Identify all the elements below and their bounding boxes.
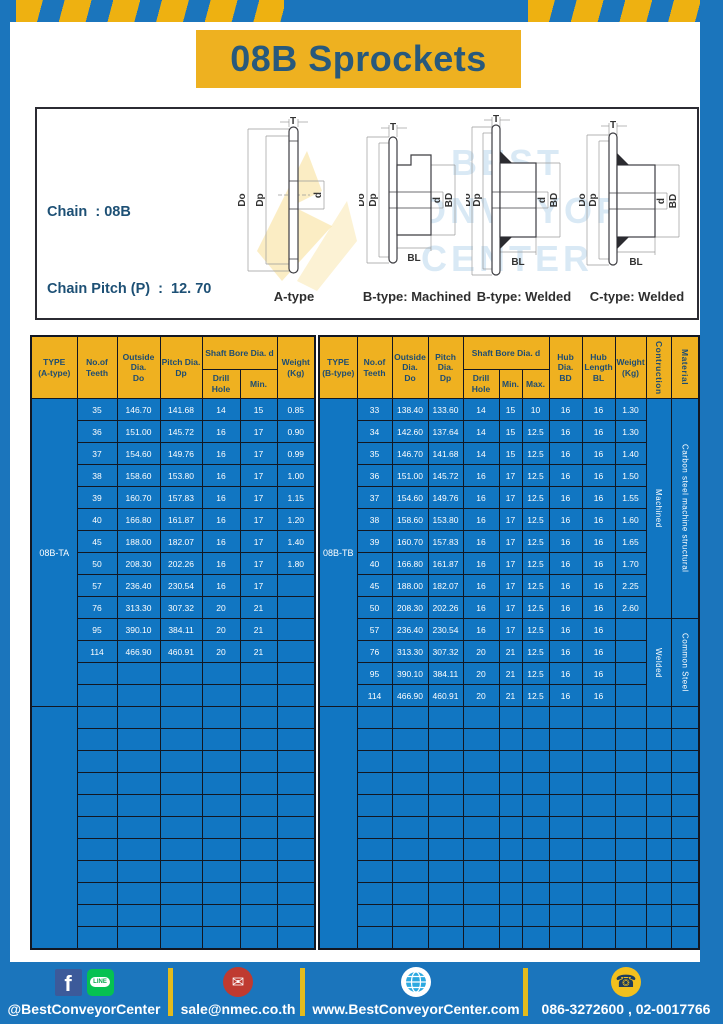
table-row (319, 927, 699, 950)
data-cell (77, 685, 117, 707)
data-cell (499, 861, 522, 883)
data-cell (357, 839, 392, 861)
table-a-type: TYPE (A-type) No.of Teeth Outside Dia. D… (30, 335, 316, 950)
data-cell (615, 905, 646, 927)
data-cell (77, 861, 117, 883)
sprocket-drawing-c-welded: T Do Dp d BD BL (579, 115, 695, 287)
data-cell: 16 (582, 663, 615, 685)
mail-icon[interactable]: ✉ (223, 967, 253, 997)
data-cell (582, 773, 615, 795)
data-cell (160, 927, 202, 950)
data-cell: 16 (549, 641, 582, 663)
data-cell: 151.00 (117, 421, 160, 443)
data-cell (522, 883, 549, 905)
table-row: 38158.60153.80161712.516161.60 (319, 509, 699, 531)
data-cell (615, 729, 646, 751)
data-cell (202, 773, 240, 795)
table-row (319, 861, 699, 883)
data-cell (392, 773, 428, 795)
data-cell (671, 839, 699, 861)
data-cell: 166.80 (117, 509, 160, 531)
data-cell (277, 575, 315, 597)
data-cell: 36 (77, 421, 117, 443)
data-cell (160, 773, 202, 795)
data-cell (499, 839, 522, 861)
header-teeth: No.of Teeth (77, 336, 117, 399)
data-cell (160, 861, 202, 883)
table-row: 08B-TB33138.40133.6014151016161.30Machin… (319, 399, 699, 421)
diagram-b-type-welded: T Do Dp d BD BL B-type: Welded (466, 115, 582, 304)
data-cell (277, 685, 315, 707)
dim-t-label: T (493, 115, 499, 125)
data-cell (357, 883, 392, 905)
data-cell (117, 883, 160, 905)
diagram-caption: C-type: Welded (579, 289, 695, 304)
table-row (319, 839, 699, 861)
data-cell (549, 839, 582, 861)
data-cell (357, 795, 392, 817)
data-cell (277, 619, 315, 641)
line-icon[interactable]: LINE (87, 969, 114, 996)
data-cell (646, 773, 671, 795)
footer-email-section[interactable]: ✉ sale@nmec.co.th (178, 965, 298, 1017)
footer-divider (168, 968, 173, 1016)
globe-glyph (404, 970, 428, 994)
data-cell (671, 883, 699, 905)
data-cell: 1.20 (277, 509, 315, 531)
data-cell (117, 861, 160, 883)
data-cell (582, 905, 615, 927)
data-cell: 1.00 (277, 465, 315, 487)
data-cell: 14 (463, 421, 499, 443)
data-cell (522, 707, 549, 729)
data-cell (615, 927, 646, 950)
data-cell (277, 817, 315, 839)
data-cell (671, 905, 699, 927)
data-cell (646, 795, 671, 817)
data-cell: 16 (582, 487, 615, 509)
data-cell (499, 905, 522, 927)
data-cell (463, 729, 499, 751)
data-cell (499, 773, 522, 795)
data-cell: 146.70 (392, 443, 428, 465)
sprocket-drawing-a: T Do Dp d (236, 115, 352, 287)
data-cell: 182.07 (160, 531, 202, 553)
table-row: 40166.80161.87161712.516161.70 (319, 553, 699, 575)
data-cell: 141.68 (160, 399, 202, 421)
data-cell: 0.85 (277, 399, 315, 421)
data-cell (77, 839, 117, 861)
data-cell: 384.11 (428, 663, 463, 685)
data-cell: 15 (499, 421, 522, 443)
data-cell (277, 773, 315, 795)
data-cell: 38 (357, 509, 392, 531)
table-row: 76313.30307.32202112.51616 (319, 641, 699, 663)
data-cell: 1.65 (615, 531, 646, 553)
diagram-panel: BEST CONVEYOR CENTER Chain : 08B Chain P… (35, 107, 699, 320)
data-cell: 14 (202, 399, 240, 421)
data-cell (202, 685, 240, 707)
table-row: 35146.70141.68141512.516161.40 (319, 443, 699, 465)
data-cell: 20 (463, 663, 499, 685)
data-cell (77, 663, 117, 685)
hazard-stripes-left (16, 0, 284, 22)
data-cell (428, 751, 463, 773)
data-cell: 20 (463, 641, 499, 663)
data-cell (428, 905, 463, 927)
footer-divider (523, 968, 528, 1016)
globe-icon[interactable] (401, 967, 431, 997)
data-cell: 230.54 (160, 575, 202, 597)
data-cell (240, 861, 277, 883)
data-cell: 12.5 (522, 619, 549, 641)
data-cell: 114 (77, 641, 117, 663)
data-cell: 1.80 (277, 553, 315, 575)
data-cell (240, 663, 277, 685)
header-shaft-bore: Shaft Bore Dia. d (202, 336, 277, 370)
data-cell: 230.54 (428, 619, 463, 641)
data-cell: 16 (463, 487, 499, 509)
data-cell (428, 839, 463, 861)
data-cell (357, 927, 392, 950)
data-cell: 17 (499, 575, 522, 597)
data-cell (582, 817, 615, 839)
table-row (319, 729, 699, 751)
data-cell (615, 883, 646, 905)
data-cell: 133.60 (428, 399, 463, 421)
data-cell (277, 663, 315, 685)
footer-phone-section[interactable]: ☎ 086-3272600 , 02-0017766 (533, 965, 719, 1017)
data-cell (202, 729, 240, 751)
data-cell: 16 (582, 685, 615, 707)
data-cell (671, 817, 699, 839)
data-cell: 188.00 (392, 575, 428, 597)
data-cell: 0.90 (277, 421, 315, 443)
data-cell: 16 (549, 575, 582, 597)
data-cell (582, 839, 615, 861)
data-cell (117, 795, 160, 817)
diagram-c-type-welded: T Do Dp d BD BL C-type: Welded (579, 115, 695, 304)
data-cell (240, 707, 277, 729)
data-cell: 16 (582, 399, 615, 421)
data-cell: 21 (499, 663, 522, 685)
table-a-body: 08B-TA35146.70141.6814150.8536151.00145.… (31, 399, 315, 950)
data-cell: 20 (202, 619, 240, 641)
data-cell: 15 (499, 399, 522, 421)
data-cell (392, 927, 428, 950)
data-cell: 149.76 (428, 487, 463, 509)
data-cell (671, 707, 699, 729)
data-cell (549, 751, 582, 773)
dim-bd-label: BD (549, 193, 560, 207)
data-cell (522, 773, 549, 795)
data-cell (240, 905, 277, 927)
header-type: TYPE (B-type) (319, 336, 357, 399)
data-cell (277, 597, 315, 619)
data-cell (240, 729, 277, 751)
data-cell: 153.80 (160, 465, 202, 487)
footer-social-section[interactable]: f LINE @BestConveyorCenter (4, 965, 164, 1017)
table-row: 45188.00182.07161712.516162.25 (319, 575, 699, 597)
data-cell: 14 (463, 443, 499, 465)
data-cell (77, 707, 117, 729)
data-cell (615, 839, 646, 861)
data-cell: 40 (77, 509, 117, 531)
data-cell: 17 (499, 597, 522, 619)
data-cell (117, 927, 160, 950)
data-cell (392, 883, 428, 905)
data-cell (202, 663, 240, 685)
data-cell (615, 817, 646, 839)
data-cell (117, 707, 160, 729)
data-cell (463, 905, 499, 927)
dim-d-label: d (313, 192, 324, 198)
data-cell: 50 (357, 597, 392, 619)
line-icon-label: LINE (90, 977, 110, 987)
data-cell (160, 685, 202, 707)
data-cell: 16 (582, 421, 615, 443)
dim-bd-label: BD (444, 193, 455, 207)
data-cell (522, 927, 549, 950)
data-cell (522, 817, 549, 839)
table-row (319, 707, 699, 729)
data-cell: 16 (582, 553, 615, 575)
data-cell (522, 861, 549, 883)
data-cell (549, 795, 582, 817)
phone-numbers-text[interactable]: 086-3272600 , 02-0017766 (533, 1001, 719, 1017)
data-cell: 21 (240, 619, 277, 641)
data-cell: 16 (549, 553, 582, 575)
data-cell (277, 751, 315, 773)
data-cell: 16 (463, 619, 499, 641)
data-cell (646, 729, 671, 751)
data-cell (463, 817, 499, 839)
data-cell: 20 (202, 641, 240, 663)
data-cell (357, 707, 392, 729)
website-text[interactable]: www.BestConveyorCenter.com (312, 1001, 520, 1017)
data-cell (428, 795, 463, 817)
facebook-icon[interactable]: f (55, 969, 82, 996)
footer-divider (300, 968, 305, 1016)
hazard-stripes-right (528, 0, 723, 22)
data-cell (202, 817, 240, 839)
data-cell: 146.70 (117, 399, 160, 421)
data-cell (463, 707, 499, 729)
right-border (700, 0, 723, 1024)
data-cell: 188.00 (117, 531, 160, 553)
data-cell (392, 795, 428, 817)
dim-t-label: T (290, 116, 296, 127)
social-handle-text[interactable]: @BestConveyorCenter (4, 1001, 164, 1017)
data-cell: 17 (499, 553, 522, 575)
type-cell: 08B-TB (319, 399, 357, 707)
data-cell (428, 861, 463, 883)
table-row: 08B-TA35146.70141.6814150.85 (31, 399, 315, 421)
data-cell (549, 905, 582, 927)
data-cell (277, 641, 315, 663)
data-cell (202, 751, 240, 773)
dim-bd-label: BD (668, 194, 679, 208)
data-cell: 33 (357, 399, 392, 421)
data-cell: 34 (357, 421, 392, 443)
data-cell (463, 861, 499, 883)
table-row (319, 905, 699, 927)
data-cell: 35 (357, 443, 392, 465)
data-cell: 208.30 (117, 553, 160, 575)
data-cell: 17 (240, 509, 277, 531)
data-cell (428, 773, 463, 795)
data-cell: 17 (499, 487, 522, 509)
data-cell: 16 (549, 421, 582, 443)
dim-d-label: d (537, 197, 548, 203)
data-cell: 12.5 (522, 663, 549, 685)
email-text[interactable]: sale@nmec.co.th (178, 1001, 298, 1017)
data-cell (240, 839, 277, 861)
data-cell (671, 751, 699, 773)
data-cell (392, 729, 428, 751)
data-cell: 35 (77, 399, 117, 421)
data-cell: 12.5 (522, 597, 549, 619)
data-cell (646, 751, 671, 773)
data-cell (117, 817, 160, 839)
data-cell: 166.80 (392, 553, 428, 575)
data-cell: 12.5 (522, 641, 549, 663)
table-row (319, 751, 699, 773)
header-drill-hole: Drill Hole (463, 370, 499, 399)
data-cell (463, 773, 499, 795)
table-row (31, 707, 315, 729)
title-banner: 08B Sprockets (196, 30, 521, 88)
data-cell (499, 817, 522, 839)
diagram-caption: B-type: Machined (359, 289, 475, 304)
data-cell: 16 (202, 487, 240, 509)
data-cell: 17 (240, 465, 277, 487)
data-cell: 17 (499, 619, 522, 641)
data-cell (117, 685, 160, 707)
data-cell: 16 (549, 619, 582, 641)
data-cell (646, 883, 671, 905)
header-min: Min. (499, 370, 522, 399)
header-teeth: No.of Teeth (357, 336, 392, 399)
data-cell: 17 (240, 421, 277, 443)
data-cell (582, 927, 615, 950)
data-cell: 154.60 (117, 443, 160, 465)
data-cell: 12.5 (522, 509, 549, 531)
data-cell: 15 (499, 443, 522, 465)
data-cell (646, 905, 671, 927)
data-cell: 12.5 (522, 531, 549, 553)
data-cell: 17 (240, 575, 277, 597)
data-cell: 12.5 (522, 421, 549, 443)
header-type: TYPE (A-type) (31, 336, 77, 399)
header-pitch-dia: Pitch Dia. Dp (160, 336, 202, 399)
phone-icon[interactable]: ☎ (611, 967, 641, 997)
data-cell (77, 773, 117, 795)
data-cell: 16 (549, 663, 582, 685)
left-border (0, 0, 10, 1024)
data-cell: 16 (582, 465, 615, 487)
data-cell: 1.40 (615, 443, 646, 465)
data-cell: 158.60 (392, 509, 428, 531)
data-cell (646, 861, 671, 883)
data-cell (392, 817, 428, 839)
data-cell (615, 685, 646, 707)
table-row: 57236.40230.54161712.51616WeldedCommon S… (319, 619, 699, 641)
data-cell: 14 (463, 399, 499, 421)
footer-website-section[interactable]: www.BestConveyorCenter.com (312, 965, 520, 1017)
data-cell (160, 883, 202, 905)
dim-dp-label: Dp (255, 193, 266, 206)
sprocket-drawing-b-machined: T Do Dp d BD BL (359, 115, 475, 287)
header-hub-length: Hub Length BL (582, 336, 615, 399)
data-cell (428, 927, 463, 950)
data-cell (160, 729, 202, 751)
data-cell (392, 839, 428, 861)
dim-bl-label: BL (629, 257, 642, 268)
data-cell (549, 773, 582, 795)
data-cell (117, 751, 160, 773)
data-cell (240, 795, 277, 817)
data-cell: 76 (77, 597, 117, 619)
data-cell: 160.70 (117, 487, 160, 509)
data-cell: 39 (77, 487, 117, 509)
data-cell: 50 (77, 553, 117, 575)
dim-do-label: Do (579, 193, 588, 206)
footer-contact-bar: f LINE @BestConveyorCenter ✉ sale@nmec.c… (0, 962, 723, 1024)
data-cell (277, 729, 315, 751)
data-cell: 1.50 (615, 465, 646, 487)
data-cell (77, 927, 117, 950)
data-cell: 16 (582, 531, 615, 553)
diagram-caption: B-type: Welded (466, 289, 582, 304)
data-cell: 16 (463, 509, 499, 531)
catalog-page: 08B Sprockets BEST CONVEYOR CENTER Chain… (0, 0, 723, 1024)
data-cell (499, 927, 522, 950)
data-cell (277, 927, 315, 950)
data-cell (277, 707, 315, 729)
data-cell: 45 (357, 575, 392, 597)
data-cell: 36 (357, 465, 392, 487)
dim-do-label: Do (359, 193, 367, 206)
data-cell (549, 707, 582, 729)
data-cell: 161.87 (160, 509, 202, 531)
data-cell (240, 927, 277, 950)
dim-dp-label: Dp (588, 193, 599, 206)
data-cell (117, 905, 160, 927)
data-cell (549, 817, 582, 839)
data-cell: 1.30 (615, 421, 646, 443)
data-cell (671, 729, 699, 751)
data-cell: 12.5 (522, 465, 549, 487)
data-cell (615, 861, 646, 883)
header-hub-dia: Hub Dia. BD (549, 336, 582, 399)
data-cell (117, 839, 160, 861)
data-cell (615, 641, 646, 663)
data-cell: 1.70 (615, 553, 646, 575)
dim-d-label: d (432, 197, 443, 203)
table-row (319, 883, 699, 905)
data-cell (117, 729, 160, 751)
data-cell: 16 (582, 443, 615, 465)
data-cell (357, 773, 392, 795)
data-cell: 95 (357, 663, 392, 685)
vcell-cell: Machined (646, 399, 671, 619)
data-cell (522, 751, 549, 773)
data-cell (277, 795, 315, 817)
data-cell (671, 795, 699, 817)
data-cell (392, 751, 428, 773)
data-cell: 161.87 (428, 553, 463, 575)
